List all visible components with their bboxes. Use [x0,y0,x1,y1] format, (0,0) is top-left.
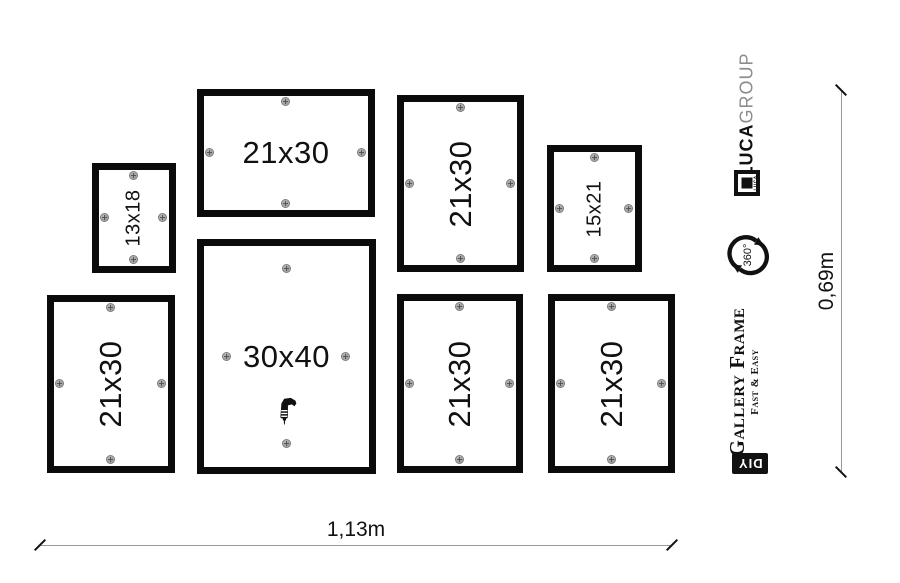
height-dimension-line [841,90,842,472]
frame-21x30-top-center: 21x30 [197,89,375,217]
diy-badge: DIY [732,453,768,474]
screw-icon [158,380,165,387]
height-dimension-label: 0,69m [815,252,839,310]
frame-size-label: 15x21 [583,180,606,237]
width-dimension-line [40,545,672,546]
screw-icon [283,265,290,272]
frame-21x30-bottom-right: 21x30 [548,294,675,473]
screw-icon [282,98,289,105]
screw-icon [591,255,598,262]
frame-size-label: 13x18 [123,190,146,247]
drill-icon [275,395,298,425]
screw-icon [456,456,463,463]
screw-icon [358,149,365,156]
frame-21x30-top-right: 21x30 [397,95,524,272]
screw-icon [107,456,114,463]
frame-21x30-bottom-left: 21x30 [47,295,175,473]
screw-icon [456,303,463,310]
screw-icon [223,353,230,360]
frame-size-label: 21x30 [243,135,330,171]
product-wordmark: Gallery Frame Fast & Easy [727,308,761,457]
screw-icon [206,149,213,156]
screw-icon [130,256,137,263]
screw-icon [591,154,598,161]
luca-logo-square-icon [742,178,753,189]
screw-icon [608,456,615,463]
screw-icon [506,380,513,387]
frame-21x30-bottom-middle: 21x30 [397,294,523,473]
screw-icon [283,440,290,447]
frame-30x40-center: 30x40 [197,239,376,474]
screw-icon [130,172,137,179]
gallery-frame-hanging-template: 13x1821x3021x3015x2121x3030x40 21x3021x3… [0,0,900,583]
screw-icon [556,205,563,212]
screw-icon [342,353,349,360]
diy-badge-label: DIY [738,456,763,471]
company-wordmark: LUCAGROUP [737,52,758,177]
frame-15x21-top-far-right: 15x21 [547,145,642,272]
product-tagline: Fast & Easy [750,308,761,457]
screw-icon [159,214,166,221]
screw-icon [625,205,632,212]
frame-size-label: 21x30 [443,140,479,227]
luca-frame-logo: LUCA [734,170,760,196]
screw-icon [406,380,413,387]
frame-size-label: 21x30 [93,341,129,428]
frame-size-label: 21x30 [442,340,478,427]
screw-icon [101,214,108,221]
screw-icon [107,304,114,311]
screw-icon [282,200,289,207]
screw-icon [658,380,665,387]
rotation-degrees-label: 360° [742,244,754,267]
screw-icon [557,380,564,387]
frame-13x18-top-left: 13x18 [92,163,176,273]
rotation-360-badge: 360° [725,232,771,278]
screw-icon [457,104,464,111]
screw-icon [507,180,514,187]
company-name-light: GROUP [737,52,757,123]
frame-size-label: 21x30 [594,340,630,427]
width-dimension-label: 1,13m [327,518,385,542]
frame-size-label: 30x40 [243,339,330,375]
product-name: Gallery Frame [727,308,748,457]
screw-icon [406,180,413,187]
screw-icon [457,255,464,262]
luca-logo-micro-text: LUCA [753,175,759,190]
screw-icon [608,303,615,310]
screw-icon [56,380,63,387]
